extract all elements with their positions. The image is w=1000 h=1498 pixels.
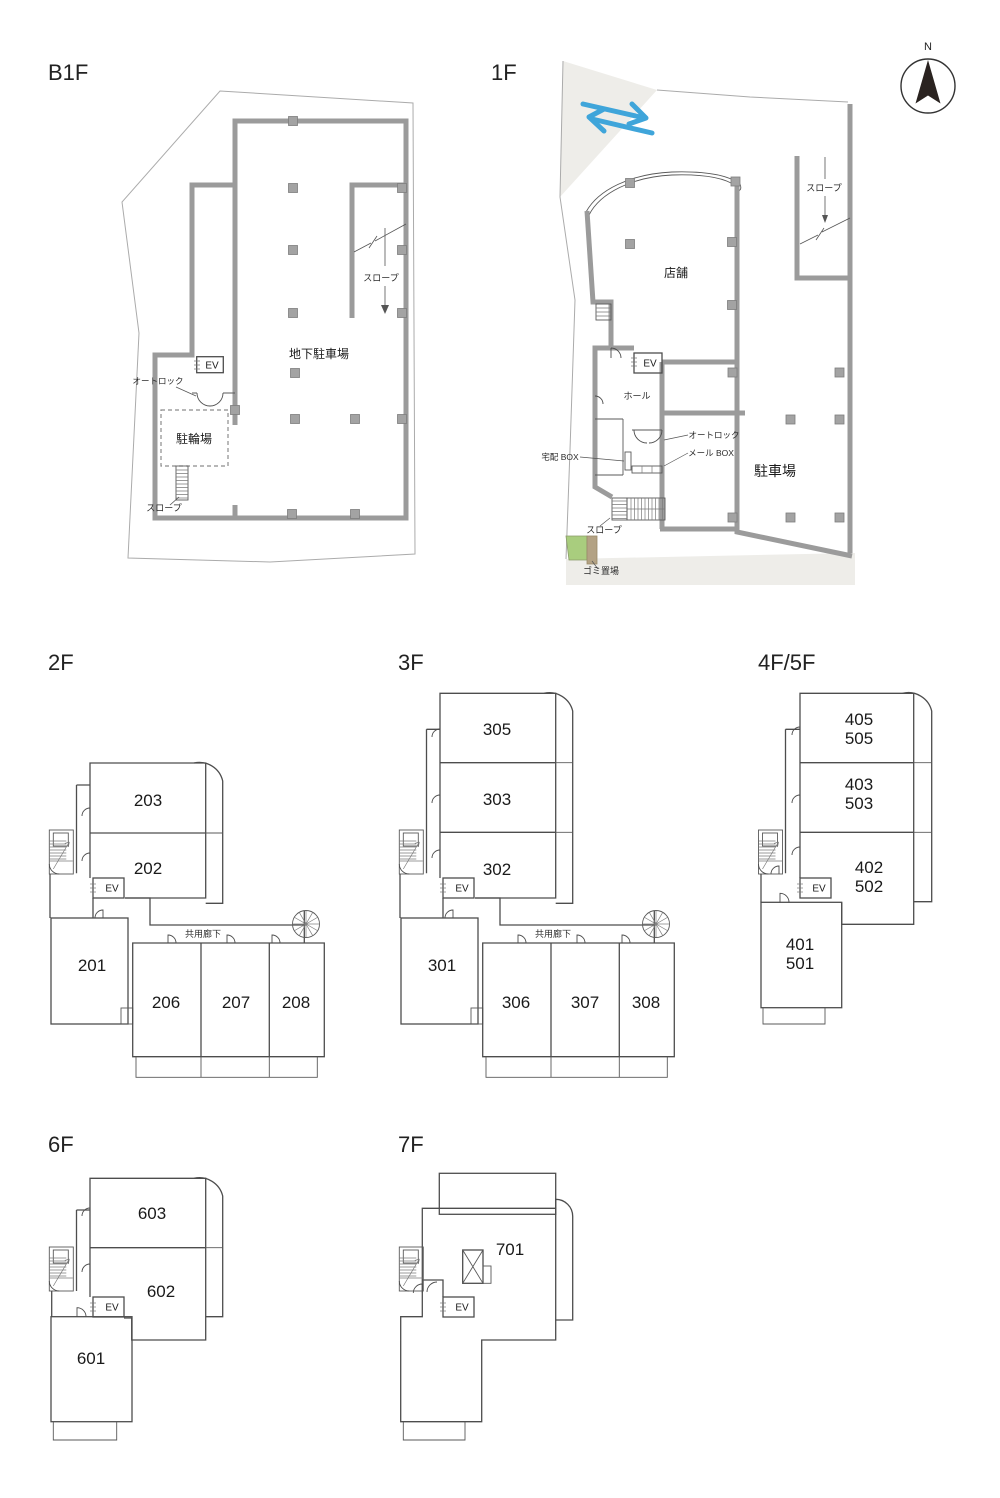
floor-title-3f: 3F xyxy=(398,650,424,675)
3f-corridor-wall xyxy=(475,898,654,925)
room-label-305: 305 xyxy=(483,720,511,739)
room-label-401: 401 xyxy=(786,935,814,954)
floorplan-3f: 3F EV 共用廊下 305 303 302 301 306 307 308 xyxy=(398,650,674,1077)
room-label-306: 306 xyxy=(502,993,530,1012)
room-label-301: 301 xyxy=(428,956,456,975)
label-garbage: ゴミ置場 xyxy=(583,565,619,576)
1f-stairs xyxy=(627,498,665,520)
site-boundary-1f-north xyxy=(657,90,848,102)
room-label-206: 206 xyxy=(152,993,180,1012)
room-label-207: 207 xyxy=(222,993,250,1012)
7f-void-box xyxy=(463,1250,491,1283)
6f-side-corridor xyxy=(77,1210,91,1291)
4f5f-balcony-strip xyxy=(903,693,932,902)
floor-title-7f: 7F xyxy=(398,1132,424,1157)
room-label-503: 503 xyxy=(845,794,873,813)
label-b1f-slope-ramp: スロープ xyxy=(363,273,398,283)
3f-ev-label: EV xyxy=(455,884,469,895)
floor-title-6f: 6F xyxy=(48,1132,74,1157)
room-601 xyxy=(51,1317,132,1422)
floorplan-4f5f: 4F/5F EV 405 505 403 503 402 502 401 501 xyxy=(758,650,932,1024)
3f-doors xyxy=(432,729,630,943)
1f-exterior-steps xyxy=(612,498,627,520)
b1f-ev-label: EV xyxy=(205,361,219,372)
floor-title-b1f: B1F xyxy=(48,60,88,85)
3f-balcony-strip xyxy=(544,693,573,904)
label-bicycle-parking: 駐輪場 xyxy=(176,431,212,446)
2f-doors xyxy=(82,808,280,943)
2f-corridor-wall xyxy=(125,898,304,925)
room-label-308: 308 xyxy=(632,993,660,1012)
north-arrow-icon: N xyxy=(901,41,955,113)
b1f-columns xyxy=(231,117,407,519)
compass-north-label: N xyxy=(924,41,932,53)
floorplan-svg: B1F EV 地下駐車場 駐輪場 xyxy=(0,0,1000,1498)
room-label-602: 602 xyxy=(147,1282,175,1301)
room-label-208: 208 xyxy=(282,993,310,1012)
floorplan-b1f: B1F EV 地下駐車場 駐輪場 xyxy=(48,60,415,562)
floorplan-sheet: B1F EV 地下駐車場 駐輪場 xyxy=(0,0,1000,1498)
floorplan-6f: 6F EV 603 602 601 xyxy=(48,1132,223,1440)
7f-balcony-strip xyxy=(556,1199,573,1320)
2f-stairs-icon xyxy=(49,830,73,874)
label-mailbox: メール BOX xyxy=(688,448,734,458)
b1f-outer-walls xyxy=(155,121,406,518)
floorplan-1f: 1F xyxy=(491,60,855,585)
b1f-autolock-doors xyxy=(197,393,223,406)
garbage-area-green xyxy=(566,536,587,560)
label-shop: 店舗 xyxy=(664,266,688,280)
room-label-303: 303 xyxy=(483,790,511,809)
label-b1f-slope-side: スロープ xyxy=(146,503,181,513)
room-label-502: 502 xyxy=(855,877,883,896)
room-label-203: 203 xyxy=(134,791,162,810)
6f-ev-label: EV xyxy=(105,1303,119,1314)
floorplan-7f: 7F EV 701 xyxy=(398,1132,573,1440)
shop-canopy-arc xyxy=(586,172,741,215)
mailbox-unit xyxy=(632,466,662,473)
3f-spiral-staircase-icon xyxy=(643,911,670,938)
7f-balcony xyxy=(403,1422,465,1440)
room-label-505: 505 xyxy=(845,729,873,748)
room-label-701: 701 xyxy=(496,1240,524,1259)
autolock-doors xyxy=(634,430,662,443)
room-label-601: 601 xyxy=(77,1349,105,1368)
3f-side-corridor xyxy=(427,729,441,873)
label-b1f-parking: 地下駐車場 xyxy=(289,346,349,361)
label-b1f-autolock: オートロック xyxy=(132,376,183,386)
label-2f-corridor: 共用廊下 xyxy=(185,928,221,939)
2f-balconies xyxy=(136,1057,317,1078)
floor-title-4f5f: 4F/5F xyxy=(758,650,815,675)
room-label-201: 201 xyxy=(78,956,106,975)
4f5f-ev-label: EV xyxy=(812,884,826,895)
floor-title-1f: 1F xyxy=(491,60,517,85)
label-delivery-box: 宅配 BOX xyxy=(541,452,579,462)
room-label-501: 501 xyxy=(786,954,814,973)
6f-stairs-icon xyxy=(49,1247,73,1291)
room-label-405: 405 xyxy=(845,710,873,729)
2f-side-corridor xyxy=(77,785,91,873)
floor-title-2f: 2F xyxy=(48,650,74,675)
floorplan-2f: 2F EV 共用廊下 203 202 201 206 207 208 xyxy=(48,650,324,1077)
garbage-area-tan xyxy=(587,536,597,564)
room-label-302: 302 xyxy=(483,860,511,879)
3f-balconies xyxy=(486,1057,667,1078)
b1f-stairs xyxy=(176,466,188,500)
room-701-outline xyxy=(401,1208,556,1421)
label-1f-slope-ramp: スロープ xyxy=(806,183,841,193)
room-label-307: 307 xyxy=(571,993,599,1012)
4f5f-balcony xyxy=(763,1008,825,1024)
3f-stairs-icon xyxy=(399,830,423,874)
6f-balcony xyxy=(53,1422,116,1440)
label-3f-corridor: 共用廊下 xyxy=(535,928,571,939)
room-label-402: 402 xyxy=(855,858,883,877)
2f-ev-label: EV xyxy=(105,884,119,895)
room-label-202: 202 xyxy=(134,859,162,878)
2f-spiral-staircase-icon xyxy=(293,911,320,938)
label-1f-parking: 駐車場 xyxy=(754,463,796,479)
1f-ev-label: EV xyxy=(643,359,657,370)
1f-walls xyxy=(587,104,852,556)
room-label-403: 403 xyxy=(845,775,873,794)
7f-ev-label: EV xyxy=(455,1303,469,1314)
delivery-box-room xyxy=(595,419,631,475)
label-hall: ホール xyxy=(623,391,650,401)
6f-doors xyxy=(77,1208,90,1317)
label-1f-autolock: オートロック xyxy=(688,430,739,440)
room-label-603: 603 xyxy=(138,1204,166,1223)
label-1f-slope-side: スロープ xyxy=(586,525,621,535)
site-boundary-b1f xyxy=(122,91,415,562)
